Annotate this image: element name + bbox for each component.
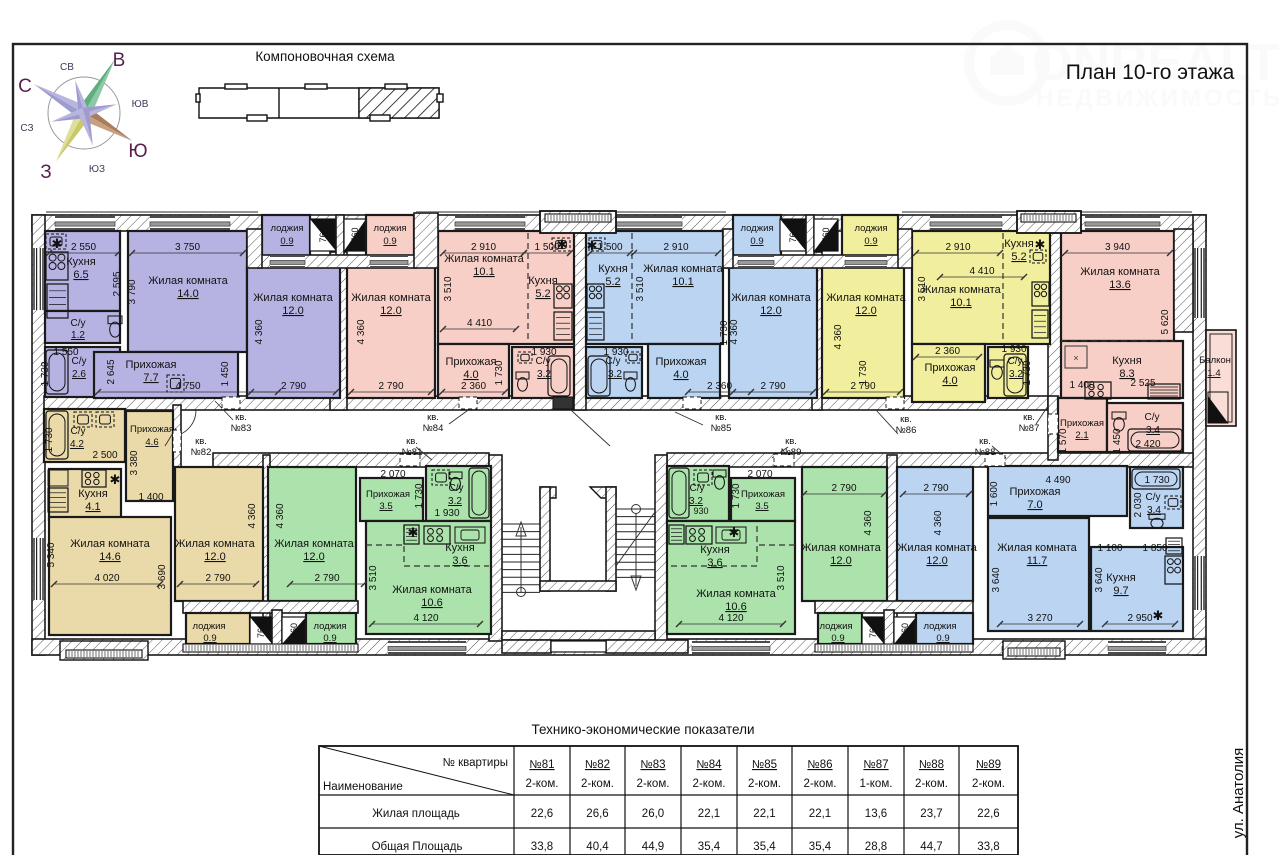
svg-text:Прихожая: Прихожая xyxy=(925,362,976,374)
svg-text:Кухня: Кухня xyxy=(1112,355,1141,367)
svg-text:Жилая комната: Жилая комната xyxy=(997,542,1077,554)
svg-text:ул. Анатолия: ул. Анатолия xyxy=(1230,748,1247,839)
svg-text:2 790: 2 790 xyxy=(281,381,306,392)
svg-text:Ю: Ю xyxy=(128,141,147,162)
svg-text:5.2: 5.2 xyxy=(535,288,550,300)
svg-text:С/у: С/у xyxy=(71,426,86,437)
svg-text:1 450: 1 450 xyxy=(220,361,231,386)
svg-text:1 930: 1 930 xyxy=(531,347,556,358)
svg-text:кв.: кв. xyxy=(1023,412,1035,423)
svg-text:12.0: 12.0 xyxy=(303,551,324,563)
svg-text:С/у: С/у xyxy=(1145,412,1160,423)
svg-text:1 400: 1 400 xyxy=(1069,380,1094,391)
svg-text:№83: №83 xyxy=(640,759,665,771)
svg-text:4 360: 4 360 xyxy=(833,324,844,349)
svg-text:2-ком.: 2-ком. xyxy=(748,778,781,790)
svg-text:3.6: 3.6 xyxy=(707,557,722,569)
svg-text:✱: ✱ xyxy=(52,236,63,251)
svg-text:1 730: 1 730 xyxy=(44,427,55,452)
svg-text:2 790: 2 790 xyxy=(205,573,230,584)
svg-text:35,4: 35,4 xyxy=(698,841,721,853)
svg-text:2 420: 2 420 xyxy=(1135,439,1160,450)
svg-text:кв.: кв. xyxy=(715,412,727,423)
svg-text:12.0: 12.0 xyxy=(282,305,303,317)
svg-text:4.2: 4.2 xyxy=(70,439,84,450)
svg-text:10.1: 10.1 xyxy=(672,276,693,288)
svg-text:26,6: 26,6 xyxy=(586,808,608,820)
svg-text:1 930: 1 930 xyxy=(1001,344,1026,355)
svg-text:Кухня: Кухня xyxy=(700,544,729,556)
svg-text:1.4: 1.4 xyxy=(1207,368,1220,379)
svg-text:5 340: 5 340 xyxy=(46,542,57,567)
svg-text:Кухня: Кухня xyxy=(78,488,107,500)
svg-text:4 020: 4 020 xyxy=(94,573,119,584)
svg-text:лоджия: лоджия xyxy=(740,223,773,234)
svg-text:10.6: 10.6 xyxy=(725,601,746,613)
svg-text:Жилая комната: Жилая комната xyxy=(444,253,524,265)
svg-text:2.1: 2.1 xyxy=(1075,430,1088,441)
svg-text:✱: ✱ xyxy=(1035,237,1046,252)
svg-text:1 600: 1 600 xyxy=(989,481,1000,506)
svg-text:С/у: С/у xyxy=(71,318,86,329)
svg-text:3.6: 3.6 xyxy=(452,555,467,567)
svg-text:4 750: 4 750 xyxy=(175,381,200,392)
svg-text:лоджия: лоджия xyxy=(270,223,303,234)
svg-text:ЮЗ: ЮЗ xyxy=(89,164,105,175)
svg-text:4 360: 4 360 xyxy=(247,503,258,528)
svg-text:930: 930 xyxy=(693,506,708,516)
svg-text:12.0: 12.0 xyxy=(760,305,781,317)
svg-text:Жилая комната: Жилая комната xyxy=(148,275,228,287)
svg-text:№89: №89 xyxy=(781,447,802,458)
svg-text:13,6: 13,6 xyxy=(865,808,887,820)
svg-text:4 410: 4 410 xyxy=(467,318,492,329)
svg-text:4.1: 4.1 xyxy=(85,501,100,513)
svg-text:Прихожая: Прихожая xyxy=(656,356,707,368)
svg-text:5 620: 5 620 xyxy=(1160,309,1171,334)
svg-text:0.9: 0.9 xyxy=(936,633,949,644)
svg-text:2 595: 2 595 xyxy=(112,271,123,296)
svg-text:С/у: С/у xyxy=(449,483,464,494)
svg-text:0.9: 0.9 xyxy=(280,236,293,247)
svg-text:3 640: 3 640 xyxy=(1094,567,1105,592)
svg-text:кв.: кв. xyxy=(195,436,207,447)
svg-text:НЕДВИЖИМОСТЬ: НЕДВИЖИМОСТЬ xyxy=(1036,85,1280,112)
svg-text:1 930: 1 930 xyxy=(434,508,459,519)
svg-text:1 730: 1 730 xyxy=(414,483,425,508)
svg-text:1 730: 1 730 xyxy=(731,483,742,508)
svg-text:35,4: 35,4 xyxy=(753,841,776,853)
svg-text:0.9: 0.9 xyxy=(864,236,877,247)
svg-text:760: 760 xyxy=(821,227,831,242)
svg-text:2.6: 2.6 xyxy=(72,369,86,380)
svg-text:Прихожая: Прихожая xyxy=(446,356,497,368)
svg-text:14.0: 14.0 xyxy=(177,288,198,300)
svg-text:4.0: 4.0 xyxy=(942,375,957,387)
svg-text:2 790: 2 790 xyxy=(923,483,948,494)
svg-text:3.2: 3.2 xyxy=(448,496,462,507)
svg-text:Жилая комната: Жилая комната xyxy=(274,538,354,550)
svg-text:3 510: 3 510 xyxy=(776,565,787,590)
svg-text:4.6: 4.6 xyxy=(145,437,158,448)
svg-text:2 790: 2 790 xyxy=(378,381,403,392)
svg-text:В: В xyxy=(113,50,126,71)
svg-text:5.2: 5.2 xyxy=(1011,251,1026,263)
svg-text:0.9: 0.9 xyxy=(750,236,763,247)
svg-text:4 360: 4 360 xyxy=(933,510,944,535)
svg-text:кв.: кв. xyxy=(785,436,797,447)
svg-text:1 400: 1 400 xyxy=(138,492,163,503)
svg-text:4 360: 4 360 xyxy=(254,319,265,344)
svg-text:Жилая комната: Жилая комната xyxy=(175,538,255,550)
svg-text:0.9: 0.9 xyxy=(203,633,216,644)
svg-text:1.2: 1.2 xyxy=(71,330,85,341)
svg-text:2-ком.: 2-ком. xyxy=(581,778,614,790)
svg-text:12.0: 12.0 xyxy=(926,555,947,567)
svg-text:Жилая комната: Жилая комната xyxy=(351,292,431,304)
svg-text:9.7: 9.7 xyxy=(1113,585,1128,597)
svg-text:лоджия: лоджия xyxy=(854,223,887,234)
svg-text:10.1: 10.1 xyxy=(473,266,494,278)
svg-text:760: 760 xyxy=(256,623,266,638)
svg-text:Кухня: Кухня xyxy=(66,256,95,268)
svg-text:10.1: 10.1 xyxy=(950,297,971,309)
svg-text:4 120: 4 120 xyxy=(718,613,743,624)
svg-text:11.7: 11.7 xyxy=(1027,555,1048,567)
svg-text:№88: №88 xyxy=(919,759,944,771)
svg-text:№86: №86 xyxy=(896,425,917,436)
svg-text:12.0: 12.0 xyxy=(204,551,225,563)
svg-text:3.4: 3.4 xyxy=(1146,425,1160,436)
svg-text:Жилая комната: Жилая комната xyxy=(1080,266,1160,278)
svg-text:Кухня: Кухня xyxy=(598,263,627,275)
svg-text:№88: №88 xyxy=(975,447,996,458)
svg-text:№85: №85 xyxy=(711,423,732,434)
svg-text:2 360: 2 360 xyxy=(935,346,960,357)
svg-text:Жилая комната: Жилая комната xyxy=(392,584,472,596)
svg-text:3.4: 3.4 xyxy=(1147,505,1161,516)
svg-text:760: 760 xyxy=(788,227,798,242)
svg-text:23,7: 23,7 xyxy=(920,808,942,820)
svg-text:№86: №86 xyxy=(807,759,832,771)
svg-text:кв.: кв. xyxy=(979,436,991,447)
svg-text:№84: №84 xyxy=(696,759,722,771)
svg-text:1 850: 1 850 xyxy=(1142,543,1167,554)
svg-text:2 950: 2 950 xyxy=(1127,613,1152,624)
svg-text:✱: ✱ xyxy=(729,525,740,540)
svg-text:4 490: 4 490 xyxy=(1045,475,1070,486)
svg-text:2 030: 2 030 xyxy=(1133,492,1144,517)
svg-text:3.2: 3.2 xyxy=(537,369,551,380)
svg-text:14.6: 14.6 xyxy=(99,551,120,563)
svg-text:лоджия: лоджия xyxy=(192,621,225,632)
svg-text:6.5: 6.5 xyxy=(73,269,88,281)
svg-text:✱: ✱ xyxy=(1153,608,1164,623)
svg-text:Прихожая: Прихожая xyxy=(1010,486,1061,498)
svg-text:2 645: 2 645 xyxy=(106,359,117,384)
svg-text:2-ком.: 2-ком. xyxy=(972,778,1005,790)
svg-text:22,1: 22,1 xyxy=(809,808,831,820)
svg-text:С/у: С/у xyxy=(1146,492,1161,503)
svg-text:№85: №85 xyxy=(752,759,777,771)
svg-text:4 360: 4 360 xyxy=(729,319,740,344)
svg-text:44,9: 44,9 xyxy=(642,841,664,853)
svg-text:×: × xyxy=(1073,353,1078,363)
svg-text:С: С xyxy=(18,76,32,97)
svg-text:Прихожая: Прихожая xyxy=(1060,418,1104,429)
svg-text:760: 760 xyxy=(868,623,878,638)
svg-text:№82: №82 xyxy=(585,759,610,771)
svg-text:1 500: 1 500 xyxy=(534,242,559,253)
svg-text:4 360: 4 360 xyxy=(275,503,286,528)
svg-text:№81: №81 xyxy=(529,759,554,771)
svg-text:3 640: 3 640 xyxy=(991,567,1002,592)
svg-text:Жилая комната: Жилая комната xyxy=(70,538,150,550)
svg-text:2 070: 2 070 xyxy=(380,469,405,480)
svg-text:СВ: СВ xyxy=(60,62,74,73)
svg-text:3 510: 3 510 xyxy=(368,565,379,590)
svg-text:2 070: 2 070 xyxy=(747,469,772,480)
svg-text:1 730: 1 730 xyxy=(40,361,51,386)
svg-text:Прихожая: Прихожая xyxy=(741,489,785,500)
svg-text:лоджия: лоджия xyxy=(923,621,956,632)
svg-text:2 360: 2 360 xyxy=(707,381,732,392)
svg-text:760: 760 xyxy=(900,623,910,638)
svg-text:1 500: 1 500 xyxy=(597,242,622,253)
svg-text:лоджия: лоджия xyxy=(313,621,346,632)
svg-text:1 730: 1 730 xyxy=(858,360,869,385)
svg-text:5.2: 5.2 xyxy=(605,276,620,288)
svg-text:2 360: 2 360 xyxy=(461,381,486,392)
svg-text:Прихожая: Прихожая xyxy=(366,489,410,500)
svg-text:35,4: 35,4 xyxy=(809,841,832,853)
svg-text:2-ком.: 2-ком. xyxy=(915,778,948,790)
svg-text:3 380: 3 380 xyxy=(129,450,140,475)
svg-text:№87: №87 xyxy=(863,759,888,771)
svg-text:3 510: 3 510 xyxy=(635,276,646,301)
svg-text:Жилая комната: Жилая комната xyxy=(253,292,333,304)
svg-text:1 730: 1 730 xyxy=(494,360,505,385)
svg-text:12.0: 12.0 xyxy=(830,555,851,567)
svg-text:33,8: 33,8 xyxy=(977,841,999,853)
svg-text:12.0: 12.0 xyxy=(855,305,876,317)
svg-text:22,1: 22,1 xyxy=(698,808,720,820)
svg-text:План 10-го этажа: План 10-го этажа xyxy=(1066,61,1235,84)
svg-text:7.0: 7.0 xyxy=(1027,499,1042,511)
svg-text:4.0: 4.0 xyxy=(463,369,478,381)
svg-text:Кухня: Кухня xyxy=(445,542,474,554)
svg-text:1 730: 1 730 xyxy=(1022,360,1033,385)
svg-text:1 550: 1 550 xyxy=(53,347,78,358)
svg-text:2 790: 2 790 xyxy=(314,573,339,584)
svg-text:кв.: кв. xyxy=(427,412,439,423)
svg-text:3.5: 3.5 xyxy=(755,501,768,512)
svg-text:2 790: 2 790 xyxy=(831,483,856,494)
svg-text:С/у: С/у xyxy=(690,483,705,494)
svg-text:1 450: 1 450 xyxy=(1112,428,1123,453)
svg-text:44,7: 44,7 xyxy=(920,841,942,853)
svg-text:№82: №82 xyxy=(191,447,212,458)
svg-text:Кухня: Кухня xyxy=(1004,238,1033,250)
svg-text:✱: ✱ xyxy=(110,472,121,487)
svg-text:№84: №84 xyxy=(423,423,444,434)
svg-text:7.7: 7.7 xyxy=(143,372,158,384)
svg-text:Жилая комната: Жилая комната xyxy=(731,292,811,304)
svg-text:33,8: 33,8 xyxy=(531,841,553,853)
svg-text:Жилая комната: Жилая комната xyxy=(826,292,906,304)
svg-text:кв.: кв. xyxy=(900,414,912,425)
svg-text:Наименование: Наименование xyxy=(323,781,403,793)
svg-text:1 100: 1 100 xyxy=(1097,543,1122,554)
svg-text:3.2: 3.2 xyxy=(608,369,622,380)
svg-text:Жилая комната: Жилая комната xyxy=(696,588,776,600)
svg-text:2-ком.: 2-ком. xyxy=(804,778,837,790)
svg-text:лоджия: лоджия xyxy=(819,621,852,632)
svg-text:760: 760 xyxy=(318,227,328,242)
svg-text:4 360: 4 360 xyxy=(356,319,367,344)
svg-text:4 410: 4 410 xyxy=(969,266,994,277)
svg-text:2-ком.: 2-ком. xyxy=(526,778,559,790)
svg-text:3.5: 3.5 xyxy=(379,501,392,512)
svg-text:28,8: 28,8 xyxy=(865,841,887,853)
svg-text:40,4: 40,4 xyxy=(586,841,609,853)
svg-text:Балкон: Балкон xyxy=(1199,355,1231,366)
svg-text:Жилая комната: Жилая комната xyxy=(801,542,881,554)
svg-text:2 910: 2 910 xyxy=(663,242,688,253)
svg-text:С/у: С/у xyxy=(1008,356,1023,367)
svg-text:26,0: 26,0 xyxy=(642,808,664,820)
svg-text:22,1: 22,1 xyxy=(753,808,775,820)
svg-text:1 730: 1 730 xyxy=(1144,475,1169,486)
svg-text:4.0: 4.0 xyxy=(673,369,688,381)
svg-text:0.9: 0.9 xyxy=(323,633,336,644)
svg-text:10.6: 10.6 xyxy=(421,597,442,609)
svg-text:3 750: 3 750 xyxy=(175,242,200,253)
svg-text:✱: ✱ xyxy=(408,525,419,540)
svg-text:Жилая комната: Жилая комната xyxy=(643,263,723,275)
svg-text:Кухня: Кухня xyxy=(1106,572,1135,584)
svg-text:2 790: 2 790 xyxy=(760,381,785,392)
svg-text:3 510: 3 510 xyxy=(443,276,454,301)
svg-text:Кухня: Кухня xyxy=(528,275,557,287)
svg-text:3 510: 3 510 xyxy=(917,276,928,301)
svg-text:Жилая площадь: Жилая площадь xyxy=(372,808,460,820)
svg-text:2 525: 2 525 xyxy=(1130,378,1155,389)
svg-text:13.6: 13.6 xyxy=(1109,279,1130,291)
svg-text:1-ком.: 1-ком. xyxy=(860,778,893,790)
svg-text:кв.: кв. xyxy=(235,412,247,423)
svg-text:760: 760 xyxy=(289,623,299,638)
svg-text:№83: №83 xyxy=(231,423,252,434)
svg-text:2 910: 2 910 xyxy=(471,242,496,253)
svg-text:2 910: 2 910 xyxy=(945,242,970,253)
svg-text:Общая Площадь: Общая Площадь xyxy=(372,841,463,853)
svg-text:2-ком.: 2-ком. xyxy=(637,778,670,790)
svg-text:Жилая комната: Жилая комната xyxy=(921,284,1001,296)
svg-text:№89: №89 xyxy=(976,759,1001,771)
svg-text:Прихожая: Прихожая xyxy=(126,359,177,371)
svg-text:З: З xyxy=(40,162,51,183)
svg-text:22,6: 22,6 xyxy=(531,808,553,820)
svg-text:3 790: 3 790 xyxy=(127,279,138,304)
svg-text:Жилая комната: Жилая комната xyxy=(897,542,977,554)
svg-text:2 550: 2 550 xyxy=(71,242,96,253)
svg-text:2-ком.: 2-ком. xyxy=(693,778,726,790)
svg-text:кв.: кв. xyxy=(406,436,418,447)
svg-text:1 930: 1 930 xyxy=(603,347,628,358)
svg-text:4 120: 4 120 xyxy=(413,613,438,624)
svg-text:№87: №87 xyxy=(1019,423,1040,434)
svg-text:1 570: 1 570 xyxy=(1058,428,1069,453)
svg-text:СЗ: СЗ xyxy=(20,123,33,134)
svg-text:Прихожая: Прихожая xyxy=(130,424,174,435)
svg-text:12.0: 12.0 xyxy=(380,305,401,317)
svg-text:760: 760 xyxy=(350,227,360,242)
svg-text:№81: №81 xyxy=(402,447,423,458)
svg-text:3 270: 3 270 xyxy=(1027,613,1052,624)
svg-text:0.9: 0.9 xyxy=(383,236,396,247)
svg-text:1 730: 1 730 xyxy=(719,320,730,345)
svg-text:ЮВ: ЮВ xyxy=(132,99,149,110)
svg-text:3 690: 3 690 xyxy=(157,564,168,589)
svg-text:3 940: 3 940 xyxy=(1105,242,1130,253)
svg-text:лоджия: лоджия xyxy=(373,223,406,234)
svg-text:22,6: 22,6 xyxy=(977,808,999,820)
svg-text:4 360: 4 360 xyxy=(863,510,874,535)
svg-text:№ квартиры: № квартиры xyxy=(443,757,508,769)
svg-text:Компоновочная схема: Компоновочная схема xyxy=(255,49,395,64)
svg-text:Технико-экономические показате: Технико-экономические показатели xyxy=(531,722,754,737)
svg-text:2 500: 2 500 xyxy=(92,450,117,461)
svg-text:0.9: 0.9 xyxy=(831,633,844,644)
